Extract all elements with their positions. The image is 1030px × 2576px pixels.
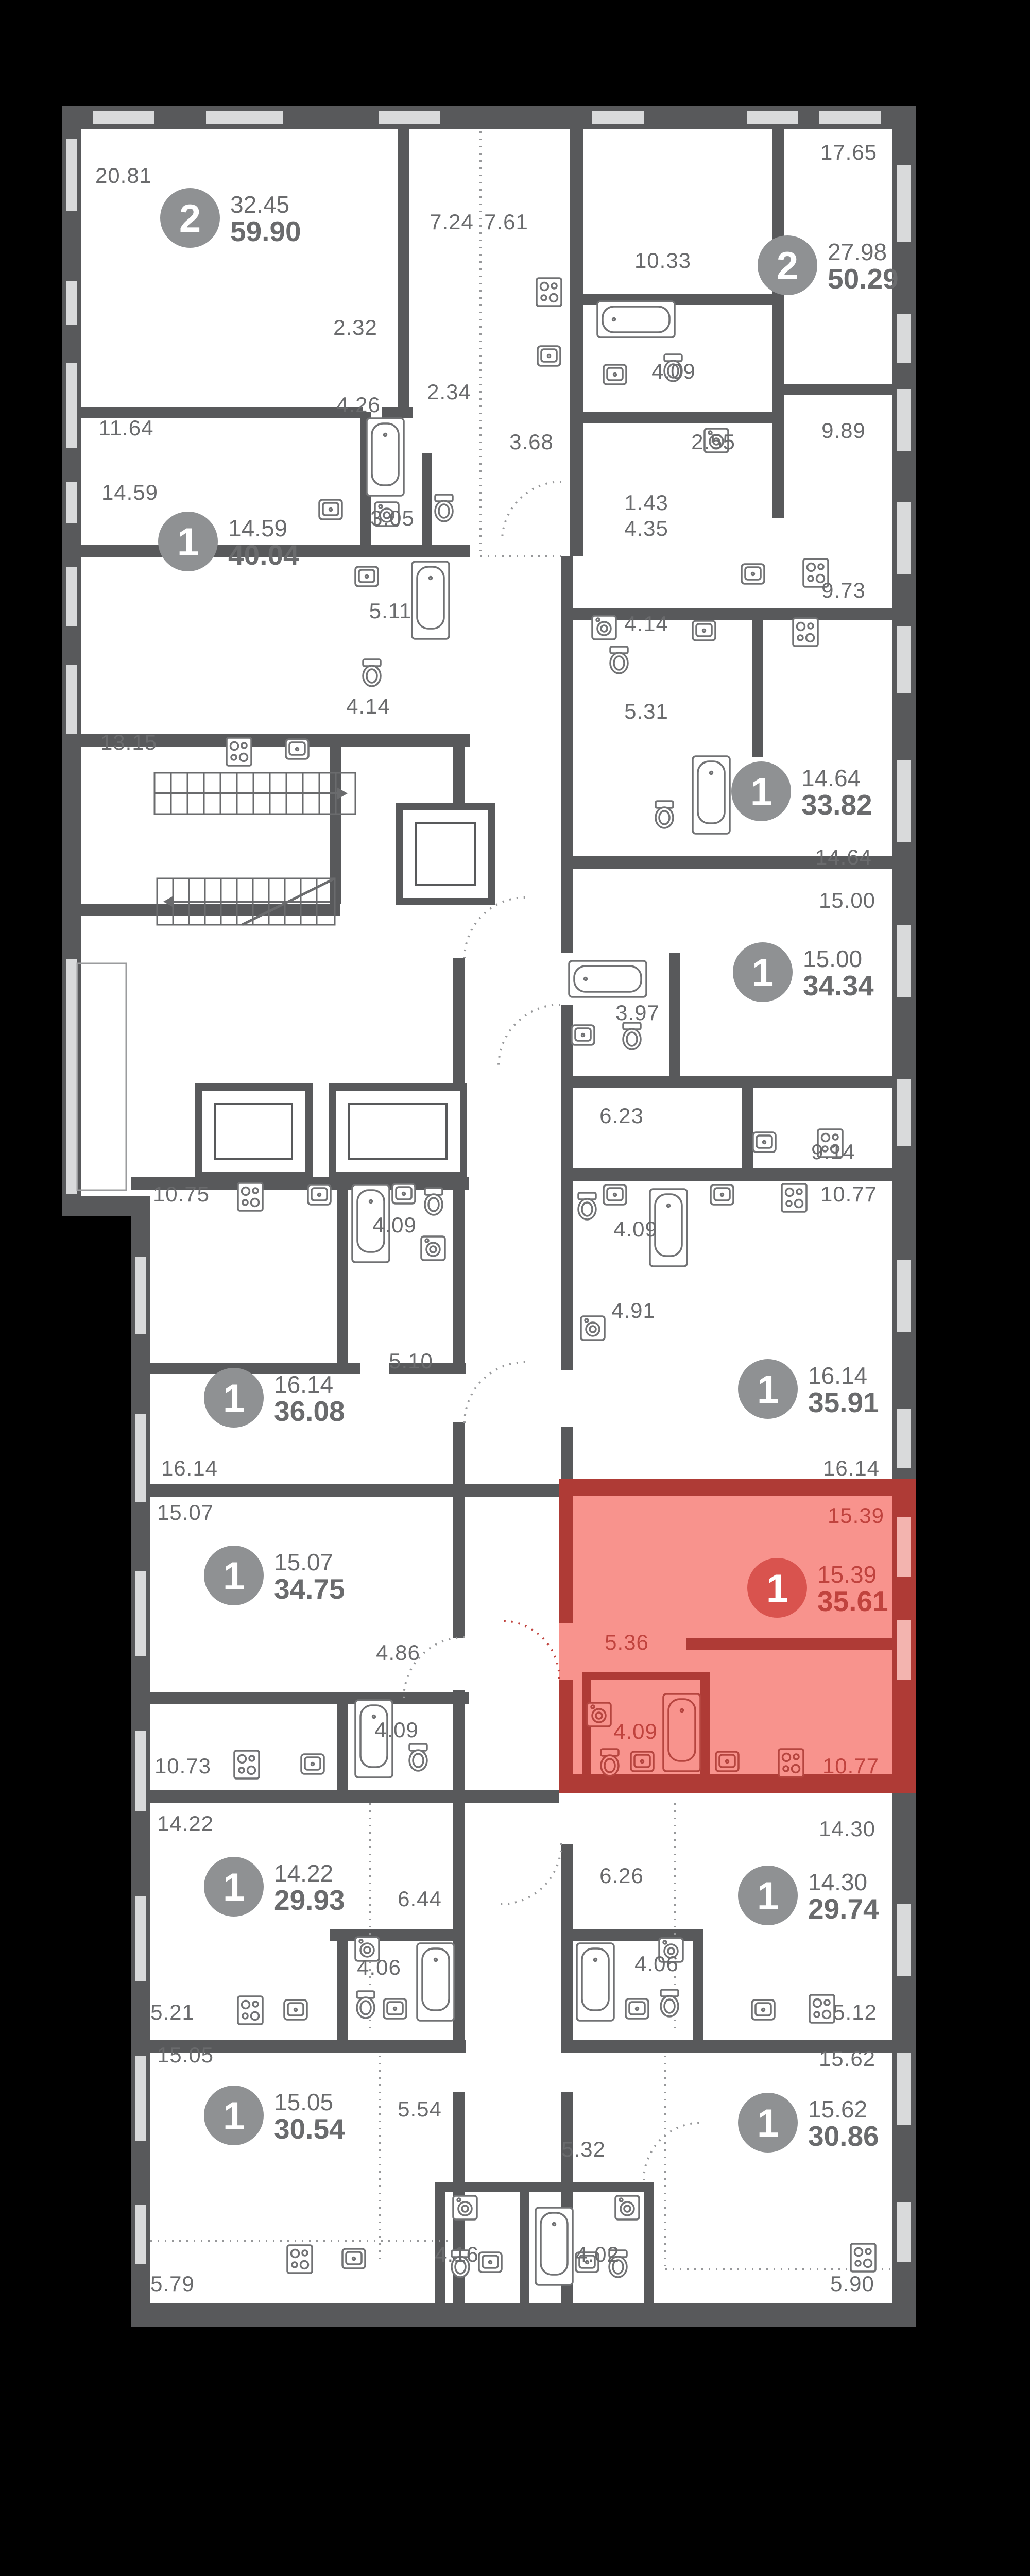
bathtub-icon [417,1943,454,2021]
room-count: 1 [223,2094,245,2138]
measurement-label: 1.43 [624,490,668,515]
washer-icon [615,2196,639,2219]
apartment-badge[interactable]: 227.9850.29 [758,235,899,295]
measurement-label: 5.21 [150,2000,195,2024]
measurement-label: 15.05 [157,2043,214,2067]
total-area: 59.90 [230,215,301,247]
sink-icon [572,1025,594,1045]
sink-icon [626,1999,648,2019]
toilet-icon [409,1744,427,1771]
apartment-badge[interactable]: 114.2229.93 [204,1857,345,1917]
apartment-badge[interactable]: 115.0530.54 [204,2086,345,2145]
living-area: 15.05 [274,2089,333,2115]
washer-icon [592,616,616,639]
sink-icon [301,1754,324,1774]
stove-icon [851,2244,875,2272]
measurement-label: 4.16 [435,2242,479,2266]
living-area: 15.00 [803,945,862,972]
apartment-badge[interactable]: 114.3029.74 [738,1866,879,1925]
measurement-label: 10.33 [634,248,691,273]
measurement-label: 9.14 [811,1140,855,1164]
stove-icon [238,1996,263,2024]
living-area: 16.14 [274,1371,333,1398]
measurement-label: 13.15 [100,730,157,754]
bathtub-icon [693,756,730,834]
measurement-label: 6.44 [398,1887,442,1911]
sink-icon [716,1752,739,1771]
apartment-badge[interactable]: 232.4559.90 [160,188,301,248]
measurement-label: 6.26 [599,1863,644,1888]
bathtub-icon [569,961,646,997]
stove-icon [810,1995,834,2023]
total-area: 33.82 [801,789,872,821]
toilet-icon [435,495,453,521]
living-area: 14.30 [808,1869,867,1895]
measurement-label: 7.24 [430,210,474,234]
measurement-label: 5.90 [830,2272,874,2296]
bathtub-icon [536,2208,573,2285]
apartment-badge[interactable]: 115.0734.75 [204,1546,345,1605]
measurement-label: 14.59 [101,480,158,504]
living-area: 15.39 [817,1561,877,1588]
sink-icon [753,1132,776,1152]
living-area: 15.07 [274,1549,333,1575]
bathtub-icon [367,418,404,496]
measurement-label: 10.75 [153,1182,210,1206]
total-area: 29.74 [808,1893,879,1925]
sink-icon [384,1999,406,2019]
stove-icon [537,278,561,306]
room-count: 1 [223,1866,245,1909]
living-area: 14.64 [801,765,861,791]
stove-icon [287,2245,312,2273]
measurement-label: 11.64 [99,416,154,440]
total-area: 30.54 [274,2113,345,2145]
toilet-icon [425,1188,442,1215]
measurement-label: 6.23 [599,1104,644,1128]
measurement-label: 15.00 [819,888,875,912]
total-area: 30.86 [808,2120,879,2152]
room-count: 1 [757,1874,779,1918]
measurement-label: 4.09 [613,1719,658,1743]
measurement-label: 20.81 [95,163,152,188]
measurement-label: 4.26 [336,393,381,417]
measurement-label: 4.86 [376,1640,420,1665]
room-count: 1 [757,2102,779,2145]
measurement-label: 4.09 [372,1213,417,1237]
living-area: 16.14 [808,1362,867,1389]
room-count: 1 [766,1567,788,1611]
apartment-badge-selected[interactable]: 115.3935.61 [747,1558,888,1618]
measurement-label: 15.39 [828,1503,884,1528]
living-area: 27.98 [828,239,887,265]
toilet-icon [610,647,628,673]
measurement-label: 15.62 [819,2046,875,2071]
measurement-label: 5.12 [833,2000,877,2024]
sink-icon [342,2249,365,2268]
measurement-label: 2.55 [691,430,735,454]
apartment-badge[interactable]: 115.6230.86 [738,2093,879,2153]
measurement-label: 10.77 [820,1182,877,1206]
living-area: 14.59 [228,515,287,541]
measurement-label: 5.54 [398,2097,442,2121]
apartment-badge[interactable]: 114.5940.04 [158,512,299,571]
measurement-label: 5.31 [624,699,668,723]
measurement-label: 10.77 [822,1754,879,1778]
sink-icon [319,500,342,519]
apartment-badge[interactable]: 115.0034.34 [733,942,874,1002]
measurement-label: 2.34 [427,380,471,404]
measurement-label: 4.09 [651,359,696,383]
bathtub-icon [412,562,449,639]
room-count: 2 [179,197,201,241]
sink-icon [286,739,308,759]
sink-icon [604,365,626,384]
sink-icon [355,567,378,586]
measurement-label: 3.05 [370,506,415,530]
measurement-label: 5.32 [561,2137,606,2161]
measurement-label: 16.14 [823,1456,880,1480]
toilet-icon [578,1193,596,1219]
total-area: 36.08 [274,1395,345,1427]
washer-icon [421,1236,445,1260]
apartment-badge[interactable]: 114.6433.82 [731,761,872,821]
washer-icon [581,1316,605,1340]
total-area: 29.93 [274,1884,345,1916]
measurement-label: 4.91 [611,1298,656,1323]
toilet-icon [357,1991,374,2018]
stove-icon [238,1183,263,1211]
measurement-label: 9.73 [821,578,866,602]
room-count: 1 [757,1368,779,1412]
measurement-label: 3.97 [615,1001,660,1025]
living-area: 15.62 [808,2096,867,2123]
room-count: 1 [750,770,772,814]
room-count: 1 [177,520,199,564]
bathtub-icon [663,1694,700,1771]
measurement-label: 3.68 [509,430,554,454]
washer-icon [587,1703,611,1726]
living-area: 32.45 [230,191,289,218]
measurement-label: 14.30 [819,1817,875,1841]
measurement-label: 5.36 [605,1630,649,1654]
measurement-label: 9.89 [821,418,866,443]
sink-icon [742,564,764,584]
sink-icon [538,346,560,366]
stove-icon [782,1184,806,1212]
measurement-label: 5.79 [150,2272,195,2296]
sink-icon [308,1185,331,1205]
bathtub-icon [597,301,675,337]
measurement-label: 2.32 [333,315,377,340]
measurement-label: 4.14 [624,612,668,636]
sink-icon [631,1752,654,1771]
measurement-label: 16.14 [161,1456,218,1480]
measurement-label: 14.64 [815,845,872,869]
measurement-label: 7.61 [484,210,528,234]
floor-plan: 20.817.247.6110.3317.652.324.262.343.684… [0,0,1030,2576]
toilet-icon [656,801,673,828]
floor-plate [62,106,916,2327]
measurement-label: 15.07 [157,1500,214,1524]
apartment-badge[interactable]: 116.1436.08 [204,1368,345,1428]
total-area: 34.34 [803,970,874,1002]
measurement-label: 5.10 [389,1349,433,1373]
floor-plan-page: 20.817.247.6110.3317.652.324.262.343.684… [0,0,1030,2576]
stove-icon [793,618,818,646]
room-count: 1 [752,951,774,995]
measurement-label: 10.73 [154,1754,211,1778]
sink-icon [711,1185,733,1205]
measurement-label: 5.11 [369,599,412,623]
measurement-label: 4.06 [634,1952,679,1976]
sink-icon [479,2252,502,2272]
stove-icon [227,738,251,766]
sink-icon [693,621,715,640]
sink-icon [604,1185,626,1205]
measurement-label: 4.09 [374,1718,419,1742]
total-area: 35.91 [808,1386,879,1418]
sink-icon [392,1184,415,1204]
toilet-icon [623,1023,641,1049]
stove-icon [779,1749,803,1777]
total-area: 50.29 [828,263,899,295]
total-area: 40.04 [228,539,299,571]
room-count: 2 [777,244,798,288]
washer-icon [453,2196,477,2219]
stove-icon [234,1751,259,1778]
living-area: 14.22 [274,1860,333,1887]
measurement-label: 4.35 [624,516,668,540]
bathtub-icon [577,1943,614,2021]
toilet-icon [661,1990,678,2016]
measurement-label: 4.06 [357,1955,401,1979]
room-count: 1 [223,1554,245,1598]
sink-icon [752,2000,775,2020]
sink-icon [284,2000,307,2020]
room-count: 1 [223,1377,245,1420]
toilet-icon [601,1749,619,1776]
measurement-label: 14.22 [157,1811,214,1836]
measurement-label: 17.65 [820,140,877,164]
measurement-label: 4.14 [346,694,390,718]
apartment-badge[interactable]: 116.1435.91 [738,1359,879,1419]
measurement-label: 4.02 [575,2242,620,2266]
total-area: 34.75 [274,1573,345,1605]
toilet-icon [363,659,381,686]
measurement-label: 4.09 [613,1217,658,1241]
total-area: 35.61 [817,1585,888,1617]
